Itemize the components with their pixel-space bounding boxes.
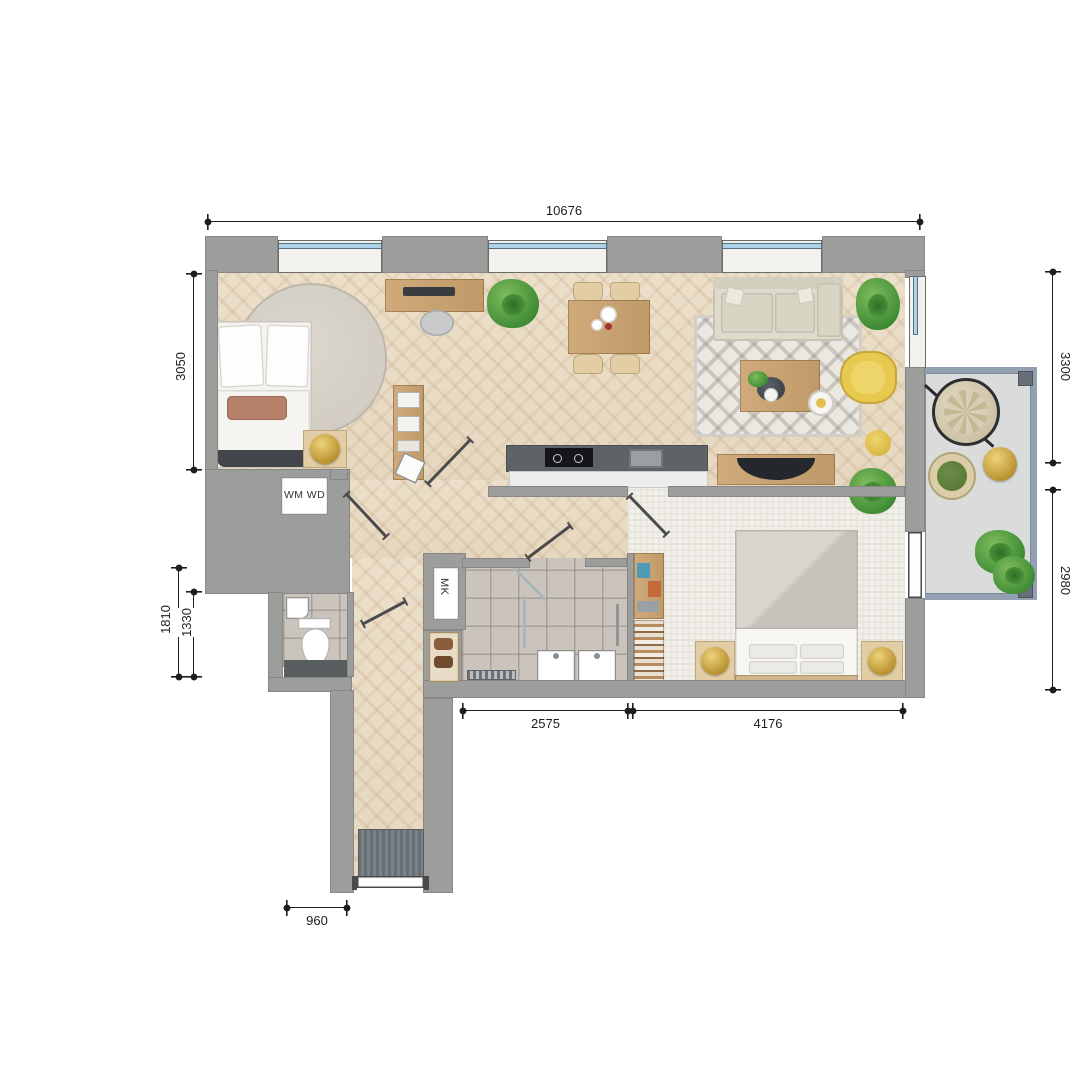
wall-hall-left: [330, 690, 354, 893]
kitchen-sink: [629, 449, 663, 468]
wall-bedroom1-bottom: [330, 469, 348, 480]
wall-right-middle: [905, 367, 925, 532]
entry-door: [357, 876, 424, 888]
bedroom2-lamp-left: [701, 647, 729, 675]
living-plant: [856, 278, 900, 330]
wall-hall-right: [423, 698, 453, 893]
window-top-2: [488, 240, 607, 273]
entry-doormat: [358, 829, 424, 878]
wall-bottom-main: [423, 680, 925, 698]
window-glass-2: [488, 243, 607, 249]
bed1-foot-bench: [217, 450, 310, 467]
dining-plate-small: [591, 319, 603, 331]
wall-bathroom-top-right: [585, 558, 627, 567]
coffee-table-plate: [764, 388, 778, 402]
wardrobe-shelf-gray: [637, 601, 659, 612]
dimension-bedroom2-width: 4176: [633, 710, 903, 711]
bedroom1-gold-lamp: [310, 434, 340, 464]
dimension-balcony-lower-label: 2980: [1056, 566, 1075, 595]
wall-top-pillar-3: [607, 236, 722, 273]
entry-door-frame-right: [424, 876, 429, 890]
basin-faucet-right: [594, 653, 600, 659]
shoe-pair-1: [434, 638, 453, 650]
coffee-table-plant: [748, 371, 768, 387]
bed2-pillow-3: [749, 661, 797, 674]
dining-plate-large: [600, 306, 617, 323]
wall-left: [205, 270, 218, 472]
shelf-item-3: [397, 440, 420, 452]
dining-chair-top-left: [573, 282, 603, 302]
window-glass-1: [278, 243, 382, 249]
wall-top-pillar-4: [822, 236, 925, 273]
wardrobe-item-orange: [648, 581, 661, 597]
basin-faucet-left: [553, 653, 559, 659]
armchair-seat: [851, 361, 885, 394]
dimension-balcony-upper: [1052, 272, 1053, 463]
pouf-yellow: [865, 430, 891, 456]
wardrobe-hanging-clothes: [634, 620, 664, 683]
toilet-shelf-dark: [284, 660, 347, 677]
hanging-chair-cushion: [944, 390, 988, 434]
wall-utility-block: [205, 469, 350, 594]
meter-closet-label: MK: [438, 578, 450, 595]
dimension-top: 10676: [208, 221, 920, 222]
shelf-item-1: [397, 392, 420, 408]
wall-bedroom2-top-right: [668, 486, 905, 497]
hob-burner-2: [574, 454, 583, 463]
bedroom2-lamp-right: [868, 647, 896, 675]
hob-burner-1: [553, 454, 562, 463]
dimension-entry: 960: [287, 907, 347, 908]
dimension-entry-label: 960: [304, 913, 330, 928]
entry-door-frame-left: [352, 876, 357, 890]
balcony-door: [908, 532, 922, 598]
desk-monitor: [403, 287, 455, 296]
toilet-corner-sink: [286, 597, 309, 619]
washer-dryer-label: WM WD: [284, 489, 325, 501]
dimension-balcony-lower: [1052, 490, 1053, 690]
dimension-bedroom1-height: [193, 274, 194, 470]
dimension-bath-zone-label: 2575: [529, 716, 562, 731]
bed1-pillow-left: [217, 324, 264, 388]
bed2-pillow-4: [800, 661, 844, 674]
dining-chair-bottom-right: [610, 354, 640, 374]
dining-chair-bottom-left: [573, 354, 603, 374]
balcony-palm-2: [993, 556, 1035, 594]
side-table-cup: [816, 398, 826, 408]
balcony-post-top: [1018, 371, 1033, 386]
balcony-gold-table: [983, 447, 1017, 481]
dimension-bath-zone: 2575: [463, 710, 628, 711]
wall-toilet-right: [347, 592, 354, 677]
window-right-living: [909, 276, 926, 368]
dimension-bedroom2-width-label: 4176: [752, 716, 785, 731]
window-glass-3: [722, 243, 822, 249]
bed2-pillow-2: [800, 644, 844, 659]
kitchen-counter: [506, 445, 708, 472]
shelf-item-2: [397, 416, 420, 432]
shoe-pair-2: [434, 656, 453, 668]
wall-bathroom-right: [627, 553, 634, 683]
bed2-pillow-1: [749, 644, 797, 659]
window-top-1: [278, 240, 382, 273]
window-glass-right: [913, 276, 918, 335]
window-top-3: [722, 240, 822, 273]
bed1-pillow-right: [265, 324, 310, 387]
sofa-throw-pillow-1: [724, 286, 744, 306]
dimension-balcony-upper-label: 3300: [1056, 352, 1075, 381]
sofa-throw-pillow-2: [797, 287, 814, 304]
dining-berry-bowl: [605, 323, 612, 330]
desk-chair: [420, 310, 454, 336]
dining-plant: [487, 279, 539, 328]
wall-right-lower: [905, 598, 925, 698]
bed1-accent-pillow: [227, 396, 287, 420]
dimension-left-outer-label: 1810: [156, 605, 175, 634]
wall-top-pillar-1: [205, 236, 278, 273]
bed2-duvet: [735, 530, 858, 629]
dimension-left-inner-label: 1330: [177, 608, 196, 637]
rattan-chair-cushion: [937, 461, 967, 491]
dimension-top-label: 10676: [544, 203, 584, 218]
sofa-chaise: [817, 283, 841, 337]
shower-rail: [616, 604, 619, 646]
wardrobe-item-blue: [637, 563, 650, 578]
dimension-bedroom1-height-label: 3050: [171, 352, 190, 381]
dining-chair-top-right: [610, 282, 640, 302]
wall-top-pillar-2: [382, 236, 488, 273]
floor-plan: MK WM WD 10676 3050 1810 1330 3300 2980 …: [0, 0, 1092, 1092]
shower-glass-vertical: [523, 596, 526, 648]
wall-bathroom-top-left: [462, 558, 530, 568]
wall-bedroom2-top-left: [488, 486, 628, 497]
bathroom-radiator: [467, 670, 516, 680]
